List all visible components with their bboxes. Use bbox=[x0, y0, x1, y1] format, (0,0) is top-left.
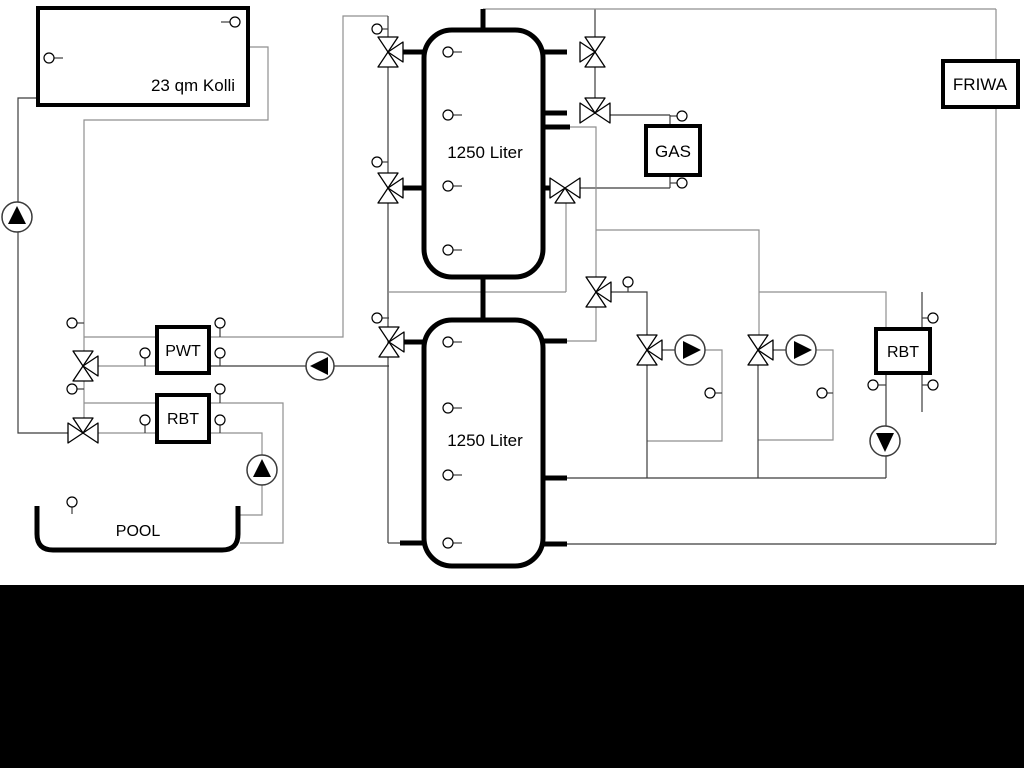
bottom-black-bar bbox=[0, 585, 1024, 768]
friwa-label: FRIWA bbox=[953, 75, 1008, 94]
tank-top-label: 1250 Liter bbox=[447, 143, 523, 162]
screenshot-root: 23 qm Kolli 1250 Liter 1250 Liter GAS FR… bbox=[0, 0, 1024, 768]
pump-icon bbox=[675, 335, 705, 365]
pump-icon bbox=[2, 202, 32, 232]
pwt-heat-exchanger-box: PWT bbox=[157, 327, 209, 373]
buffer-tank-top: 1250 Liter bbox=[424, 30, 543, 277]
pump-icon bbox=[247, 455, 277, 485]
solar-collector-box: 23 qm Kolli bbox=[38, 8, 248, 105]
rbt-right-box: RBT bbox=[876, 329, 930, 373]
pump-icon bbox=[306, 352, 334, 380]
rbt-right-label: RBT bbox=[887, 344, 919, 361]
gas-label: GAS bbox=[655, 142, 691, 161]
pool-label: POOL bbox=[116, 523, 161, 540]
pump-icon bbox=[786, 335, 816, 365]
hydraulic-schematic: 23 qm Kolli 1250 Liter 1250 Liter GAS FR… bbox=[0, 0, 1024, 768]
collector-label: 23 qm Kolli bbox=[151, 76, 235, 95]
pump-icon bbox=[870, 426, 900, 456]
tank-bottom-label: 1250 Liter bbox=[447, 431, 523, 450]
pwt-label: PWT bbox=[165, 343, 201, 360]
rbt-left-label: RBT bbox=[167, 411, 199, 428]
buffer-tank-bottom: 1250 Liter bbox=[424, 320, 543, 566]
rbt-left-box: RBT bbox=[157, 395, 209, 442]
friwa-box: FRIWA bbox=[943, 61, 1018, 107]
gas-boiler-box: GAS bbox=[646, 126, 700, 175]
